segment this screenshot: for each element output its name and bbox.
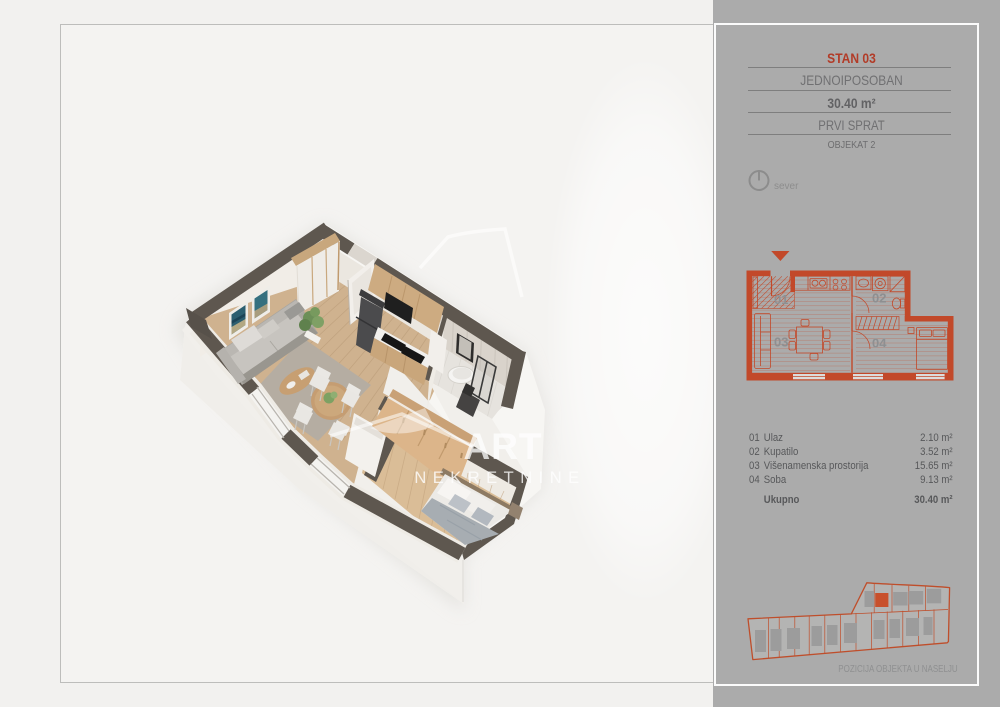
svg-text:ART: ART	[463, 426, 542, 467]
svg-text:sever: sever	[774, 181, 799, 192]
svg-text:04: 04	[872, 336, 887, 351]
svg-text:03: 03	[774, 335, 788, 350]
svg-text:02: 02	[872, 291, 886, 306]
svg-text:01: 01	[774, 292, 788, 307]
svg-text:NEKRETNINE: NEKRETNINE	[414, 469, 585, 487]
